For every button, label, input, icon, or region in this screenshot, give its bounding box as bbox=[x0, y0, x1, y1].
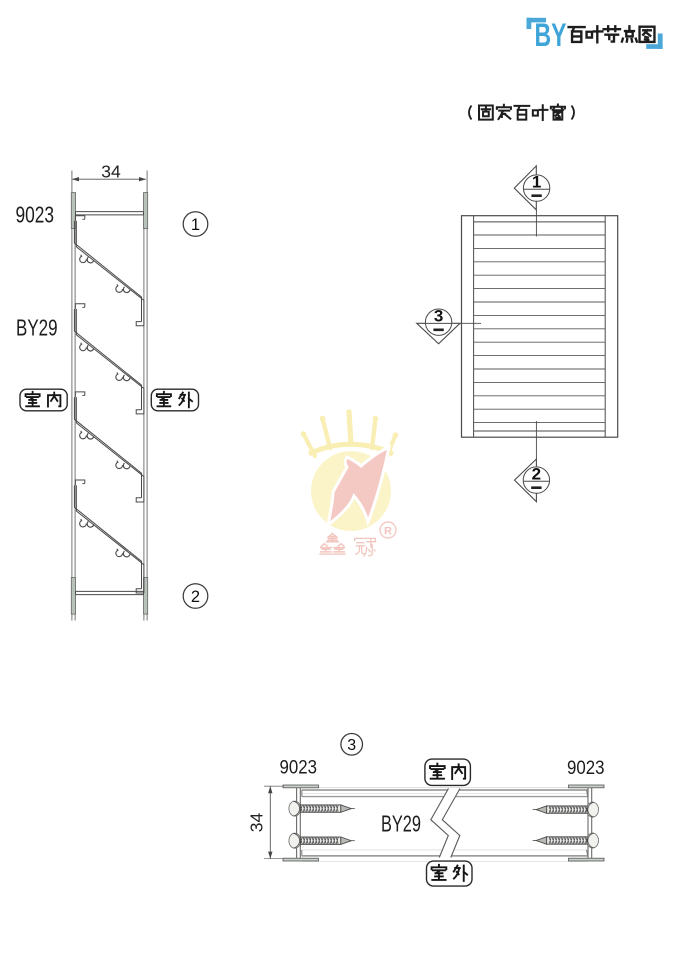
svg-text:BY29: BY29 bbox=[381, 811, 421, 837]
svg-text:R: R bbox=[384, 525, 392, 537]
svg-text:3: 3 bbox=[347, 737, 356, 754]
svg-text:34: 34 bbox=[101, 162, 121, 182]
svg-text:1: 1 bbox=[532, 173, 541, 192]
svg-text:9023: 9023 bbox=[280, 758, 318, 779]
svg-text:34: 34 bbox=[247, 813, 267, 833]
svg-text:1: 1 bbox=[191, 216, 200, 234]
svg-text:2: 2 bbox=[191, 588, 200, 606]
svg-text:9023: 9023 bbox=[567, 758, 605, 779]
svg-text:BY29: BY29 bbox=[16, 315, 58, 341]
svg-text:BY: BY bbox=[535, 17, 567, 53]
svg-text:9023: 9023 bbox=[16, 202, 55, 228]
svg-text:2: 2 bbox=[532, 465, 541, 484]
svg-text:3: 3 bbox=[434, 307, 443, 326]
